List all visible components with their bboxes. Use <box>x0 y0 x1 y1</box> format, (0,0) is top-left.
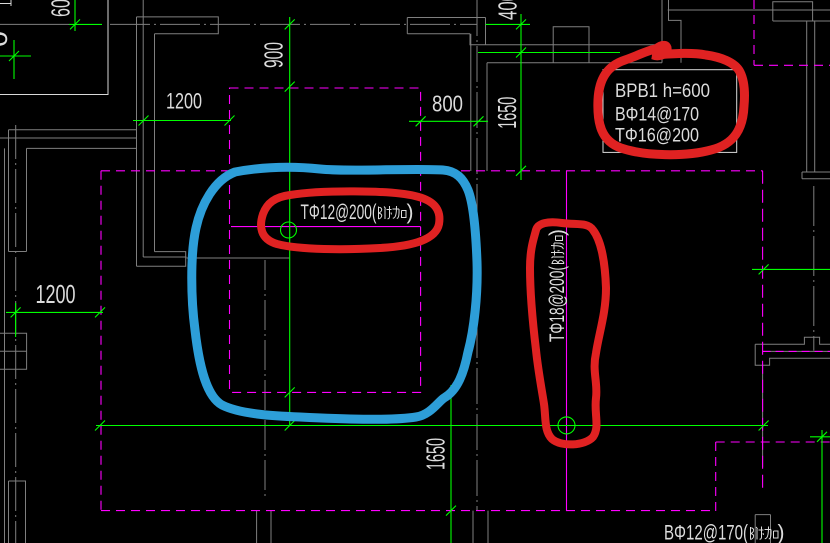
svg-text:BΦ12@170(: BΦ12@170( <box>664 522 748 543</box>
svg-text:TΦ12@200(: TΦ12@200( <box>301 201 377 224</box>
svg-text:TΦ18@200(: TΦ18@200( <box>546 266 569 342</box>
svg-text:): ) <box>778 522 785 543</box>
svg-text:TΦ16@200: TΦ16@200 <box>615 126 699 147</box>
svg-text:): ) <box>407 201 414 224</box>
svg-text:900: 900 <box>259 42 289 68</box>
svg-text:BPB1 h=600: BPB1 h=600 <box>615 81 710 102</box>
svg-text:400: 400 <box>492 0 522 20</box>
svg-text:600: 600 <box>45 0 75 17</box>
svg-text:1650: 1650 <box>492 97 522 129</box>
svg-text:1200: 1200 <box>36 279 76 309</box>
svg-text:1650: 1650 <box>420 438 450 470</box>
svg-text:BΦ14@170: BΦ14@170 <box>615 105 699 126</box>
svg-text:0: 0 <box>0 31 13 47</box>
svg-text:1200: 1200 <box>166 89 202 114</box>
svg-text:800: 800 <box>432 91 463 117</box>
svg-text:): ) <box>546 229 569 236</box>
